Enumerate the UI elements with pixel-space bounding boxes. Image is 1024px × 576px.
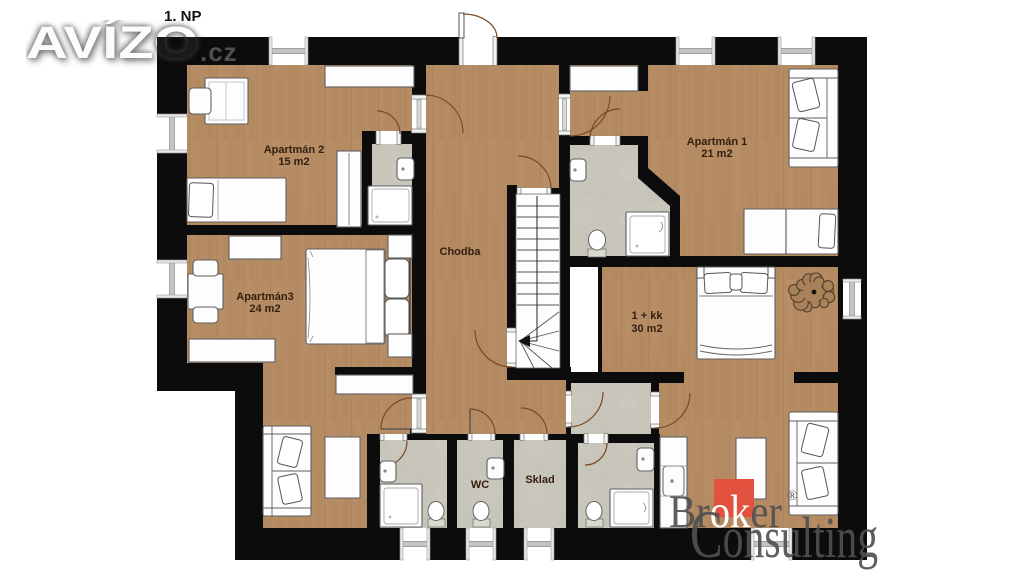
svg-text:WC: WC (471, 479, 489, 491)
svg-text:21 m2: 21 m2 (701, 148, 732, 160)
svg-text:Sklad: Sklad (525, 474, 554, 486)
svg-text:24 m2: 24 m2 (249, 303, 280, 315)
svg-text:Apartmán 1: Apartmán 1 (687, 136, 748, 148)
svg-text:Apartmán 2: Apartmán 2 (264, 144, 325, 156)
svg-text:Apartmán3: Apartmán3 (236, 291, 293, 303)
svg-text:30 m2: 30 m2 (631, 323, 662, 335)
svg-text:15 m2: 15 m2 (278, 156, 309, 168)
svg-text:1 + kk: 1 + kk (632, 310, 664, 322)
svg-text:Chodba: Chodba (440, 246, 482, 258)
